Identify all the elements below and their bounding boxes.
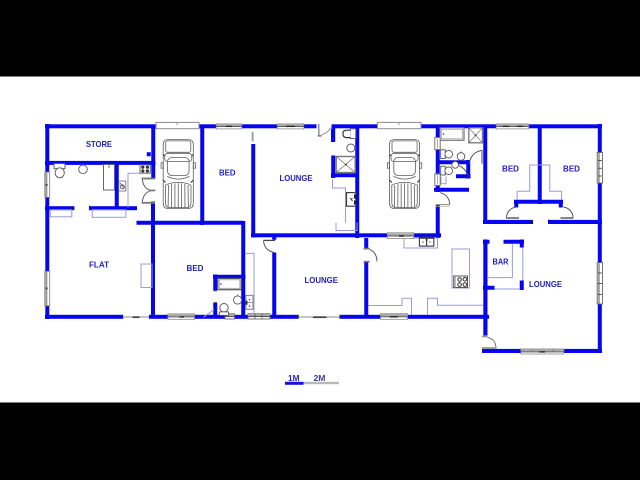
svg-text:BED: BED [219, 168, 236, 178]
svg-text:BED: BED [502, 164, 519, 174]
svg-text:BED: BED [563, 164, 580, 174]
svg-text:STORE: STORE [86, 139, 112, 149]
svg-text:LOUNGE: LOUNGE [280, 173, 313, 183]
svg-text:1M: 1M [288, 373, 300, 383]
svg-text:LOUNGE: LOUNGE [305, 275, 339, 285]
svg-text:BED: BED [187, 263, 204, 273]
svg-text:FLAT: FLAT [89, 260, 110, 270]
svg-text:BAR: BAR [493, 257, 509, 267]
svg-text:2M: 2M [314, 373, 326, 383]
svg-text:LOUNGE: LOUNGE [529, 279, 562, 289]
